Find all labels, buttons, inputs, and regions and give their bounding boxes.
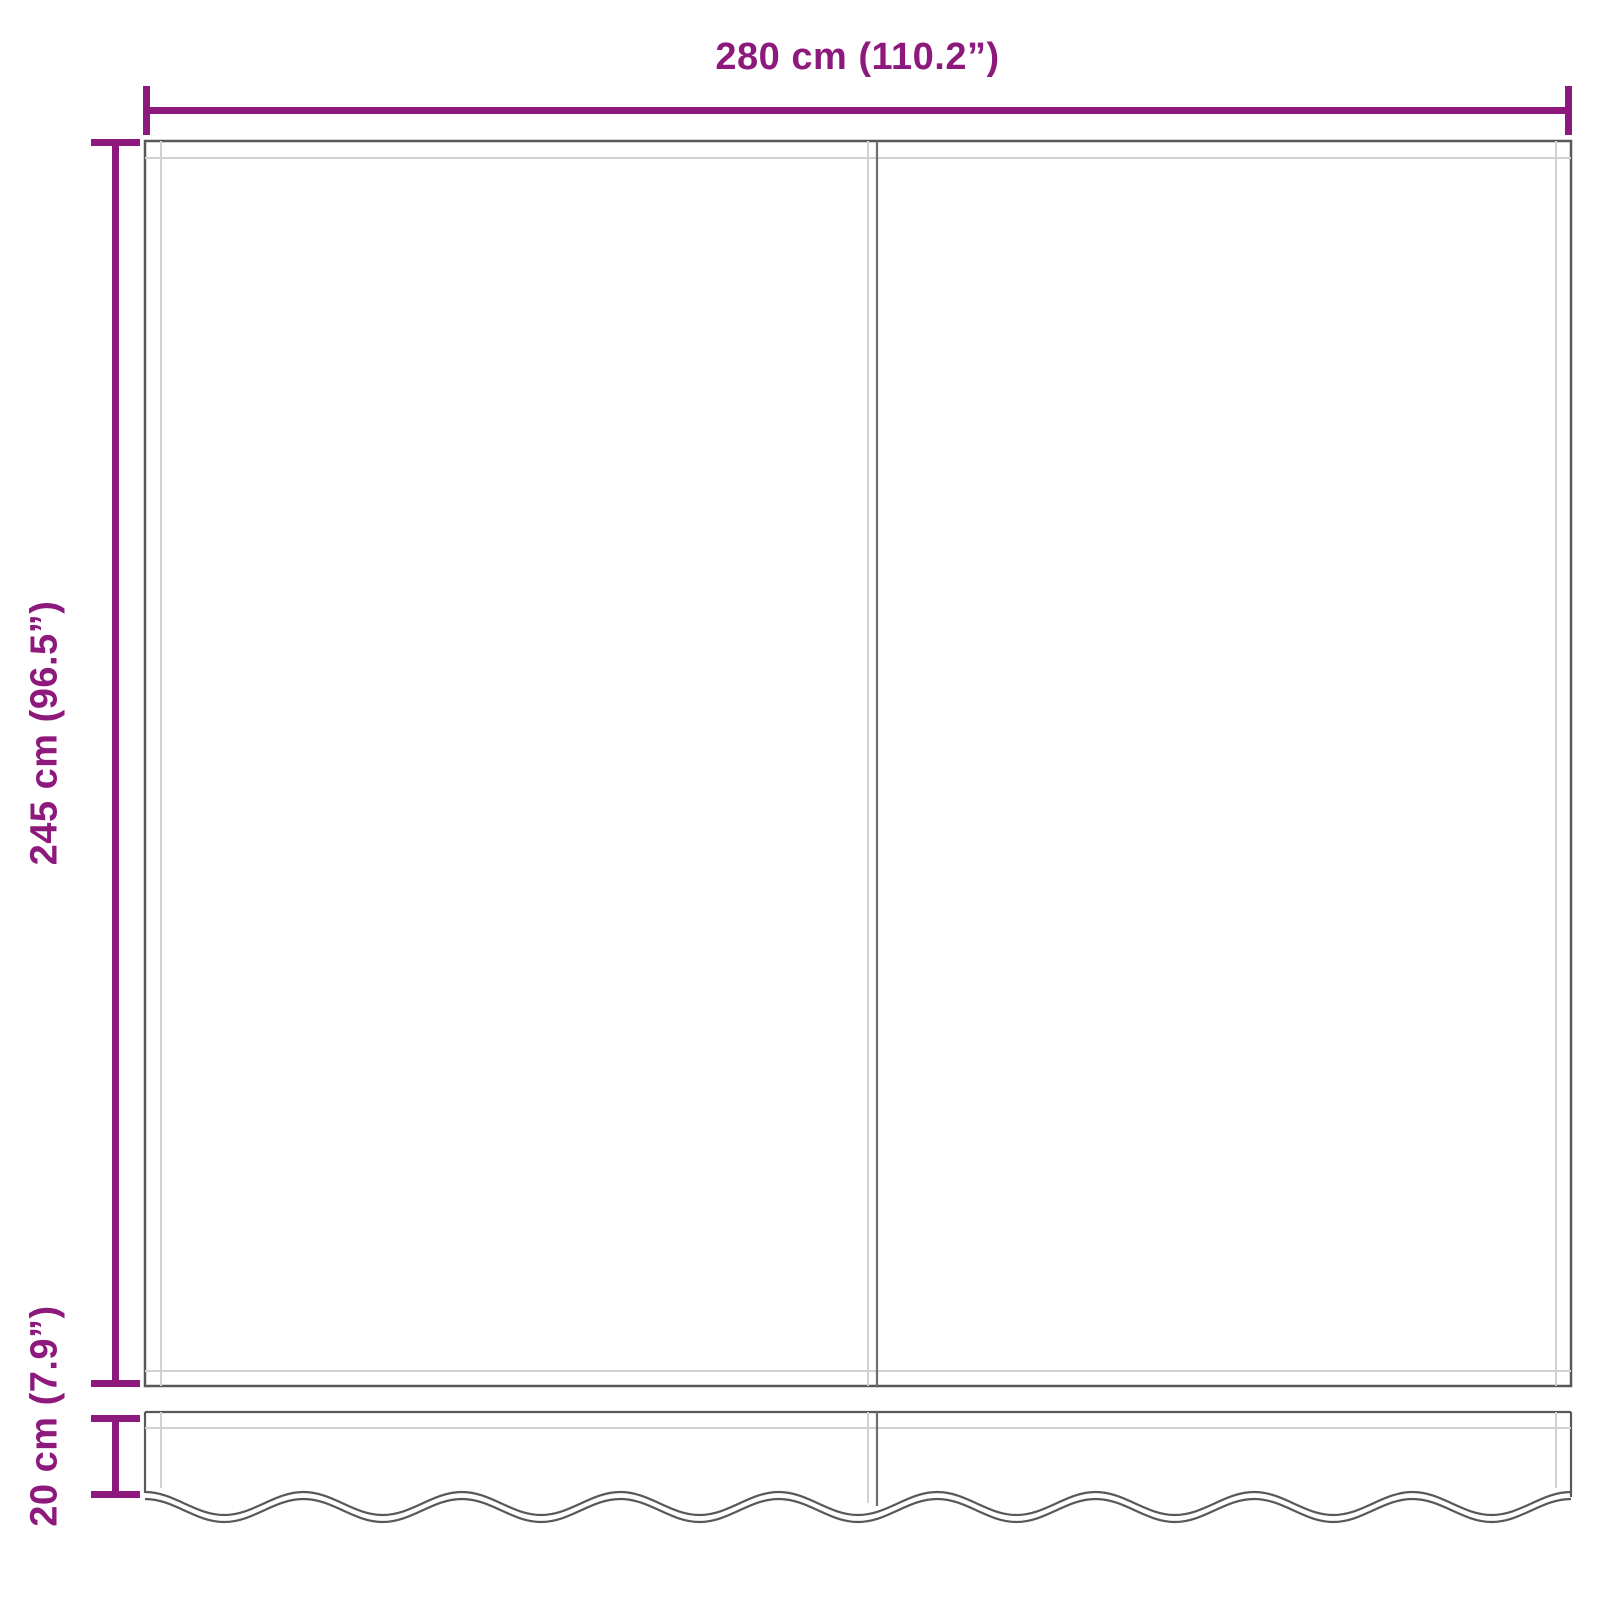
width-dimension [143,86,1572,135]
height-dimension [91,139,140,1387]
scallop-hem-line [145,1492,1571,1515]
height-dimension-bottom-cap [91,1380,140,1387]
width-dimension-line [143,107,1572,114]
valance-dimension-label: 20 cm (7.9”) [24,1305,67,1526]
fabric-panel-outline [145,141,1571,1386]
width-dimension-left-cap [143,86,150,135]
dimension-diagram: 280 cm (110.2”) 245 cm (96.5”) 20 cm (7.… [0,0,1600,1600]
valance-dimension-bottom-cap [91,1491,140,1498]
height-dimension-line [112,139,119,1387]
fabric-panel [145,141,1571,1386]
width-dimension-right-cap [1565,86,1572,135]
valance-panel [145,1412,1571,1522]
valance-height-dimension [91,1415,140,1498]
valance-dimension-top-cap [91,1415,140,1422]
height-dimension-top-cap [91,139,140,146]
awning-fabric-drawing [0,0,1600,1600]
valance-dimension-line [112,1415,119,1498]
width-dimension-label: 280 cm (110.2”) [143,36,1572,79]
height-dimension-label: 245 cm (96.5”) [24,601,67,866]
